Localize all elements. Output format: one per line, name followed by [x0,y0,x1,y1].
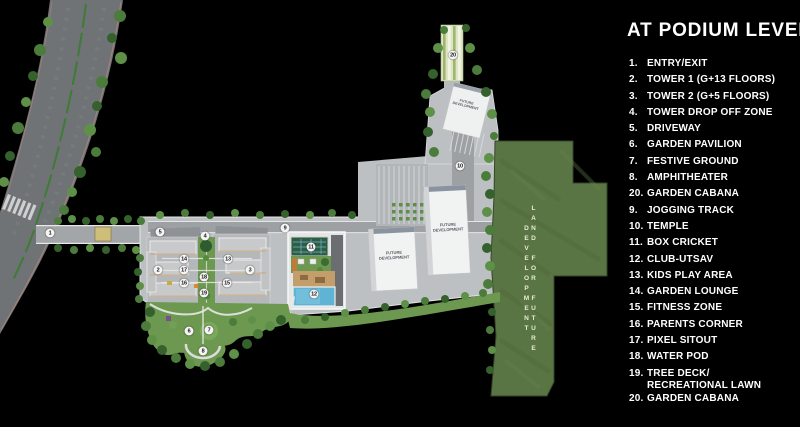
legend-item-label: WATER POD [647,349,799,365]
legend-item: 2.TOWER 1 (G+13 FLOORS) [629,72,799,88]
legend-item-label: CLUB-UTSAV [647,252,799,268]
legend-item: 1.ENTRY/EXIT [629,56,799,72]
legend-item-number: 20. [629,391,647,407]
legend-item-number: 15. [629,300,647,316]
legend-item: 7.FESTIVE GROUND [629,154,799,170]
map-marker-club-utsav: 12 [310,290,319,299]
legend-item-label: GARDEN LOUNGE [647,284,799,300]
road [0,0,123,334]
podium-level-site-plan: LAND FOR FUTURE DEVELOPMENT FUTURE DEVEL… [0,0,800,427]
south-garden [145,302,291,367]
legend-item-number: 1. [629,56,647,72]
entry-gate [95,227,111,241]
legend-item-label: KIDS PLAY AREA [647,268,799,284]
legend-item-number: 12. [629,252,647,268]
legend-item: 9.JOGGING TRACK [629,203,799,219]
legend-item-number: 19. [629,366,647,391]
legend-item-label: TOWER 2 (G+5 FLOORS) [647,89,799,105]
legend-item-number: 18. [629,349,647,365]
legend-item: 14.GARDEN LOUNGE [629,284,799,300]
legend-item-number: 17. [629,333,647,349]
legend-item-number: 13. [629,268,647,284]
legend-item-label: TREE DECK/RECREATIONAL LAWN [647,366,799,391]
play-equipment [194,284,198,288]
legend-item: 5.DRIVEWAY [629,121,799,137]
map-marker-garden-cabana: 20 [449,51,458,60]
legend-item-label: AMPHITHEATER [647,170,799,186]
legend-item: 3.TOWER 2 (G+5 FLOORS) [629,89,799,105]
legend-item-number: 8. [629,170,647,186]
legend-item-number: 4. [629,105,647,121]
legend-item: 13.KIDS PLAY AREA [629,268,799,284]
legend-item-label: FITNESS ZONE [647,300,799,316]
legend-item-number: 20. [629,186,647,202]
legend-item: 19. TREE DECK/RECREATIONAL LAWN [629,366,799,391]
legend-item: 20.GARDEN CABANA [629,186,799,202]
legend-item-label-line2: RECREATIONAL LAWN [647,380,799,391]
land-for-future-development-label: LAND FOR FUTURE DEVELOPMENT [521,158,537,402]
legend-item: 20.GARDEN CABANA [629,391,799,407]
map-marker-tower-2: 3 [246,266,255,275]
map-marker-amphitheater: 8 [199,347,208,356]
legend-item-number: 5. [629,121,647,137]
legend-item-label: GARDEN CABANA [647,186,799,202]
map-marker-parents-corner: 16 [180,279,189,288]
legend-item: 11.BOX CRICKET [629,235,799,251]
map-marker-tree-deck: 19 [200,289,209,298]
legend-item-number: 6. [629,137,647,153]
map-marker-pixel-sitout: 17 [180,266,189,275]
legend-item-label: BOX CRICKET [647,235,799,251]
legend-item: 15.FITNESS ZONE [629,300,799,316]
legend-item-label: PARENTS CORNER [647,317,799,333]
map-marker-temple: 10 [456,162,465,171]
legend-item: 18.WATER POD [629,349,799,365]
clubhouse [288,232,345,310]
legend-item-number: 10. [629,219,647,235]
legend-item-label: ENTRY/EXIT [647,56,799,72]
legend-item-label: FESTIVE GROUND [647,154,799,170]
legend-item: 17.PIXEL SITOUT [629,333,799,349]
map-marker-kids-play-area: 13 [224,255,233,264]
legend-list: 1.ENTRY/EXIT 2.TOWER 1 (G+13 FLOORS) 3.T… [629,56,799,407]
legend-item: 12.CLUB-UTSAV [629,252,799,268]
map-marker-drop-off: 4 [201,232,210,241]
page-title: AT PODIUM LEVEL [627,20,799,42]
legend-item-label: GARDEN PAVILION [647,137,799,153]
legend-item: 8.AMPHITHEATER [629,170,799,186]
legend-item-label: JOGGING TRACK [647,203,799,219]
legend-item: 6.GARDEN PAVILION [629,137,799,153]
legend: AT PODIUM LEVEL 1.ENTRY/EXIT 2.TOWER 1 (… [627,20,799,407]
map-marker-garden-pavilion: 6 [185,327,194,336]
map-marker-garden-lounge: 14 [180,255,189,264]
legend-item: 16.PARENTS CORNER [629,317,799,333]
legend-item-number: 16. [629,317,647,333]
land-for-future-development [491,141,607,396]
wooden-deck [293,271,335,288]
legend-item-number: 3. [629,89,647,105]
legend-item: 4.TOWER DROP OFF ZONE [629,105,799,121]
legend-item-label: DRIVEWAY [647,121,799,137]
legend-item-label: TOWER DROP OFF ZONE [647,105,799,121]
map-marker-festive-ground: 7 [205,326,214,335]
legend-item: 10.TEMPLE [629,219,799,235]
map-marker-fitness-zone: 15 [223,279,232,288]
legend-item-label-line1: TREE DECK/ [647,368,710,379]
legend-item-number: 2. [629,72,647,88]
legend-item-label: GARDEN CABANA [647,391,799,407]
legend-item-label: TEMPLE [647,219,799,235]
legend-item-number: 14. [629,284,647,300]
map-marker-driveway: 5 [156,228,165,237]
map-marker-entry-exit: 1 [46,229,55,238]
legend-item-label: TOWER 1 (G+13 FLOORS) [647,72,799,88]
map-marker-jogging-track: 9 [281,224,290,233]
legend-item-number: 9. [629,203,647,219]
legend-item-label: PIXEL SITOUT [647,333,799,349]
map-marker-tower-1: 2 [154,266,163,275]
legend-item-number: 7. [629,154,647,170]
legend-item-number: 11. [629,235,647,251]
map-marker-water-pod: 18 [200,273,209,282]
map-marker-box-cricket: 11 [307,243,316,252]
